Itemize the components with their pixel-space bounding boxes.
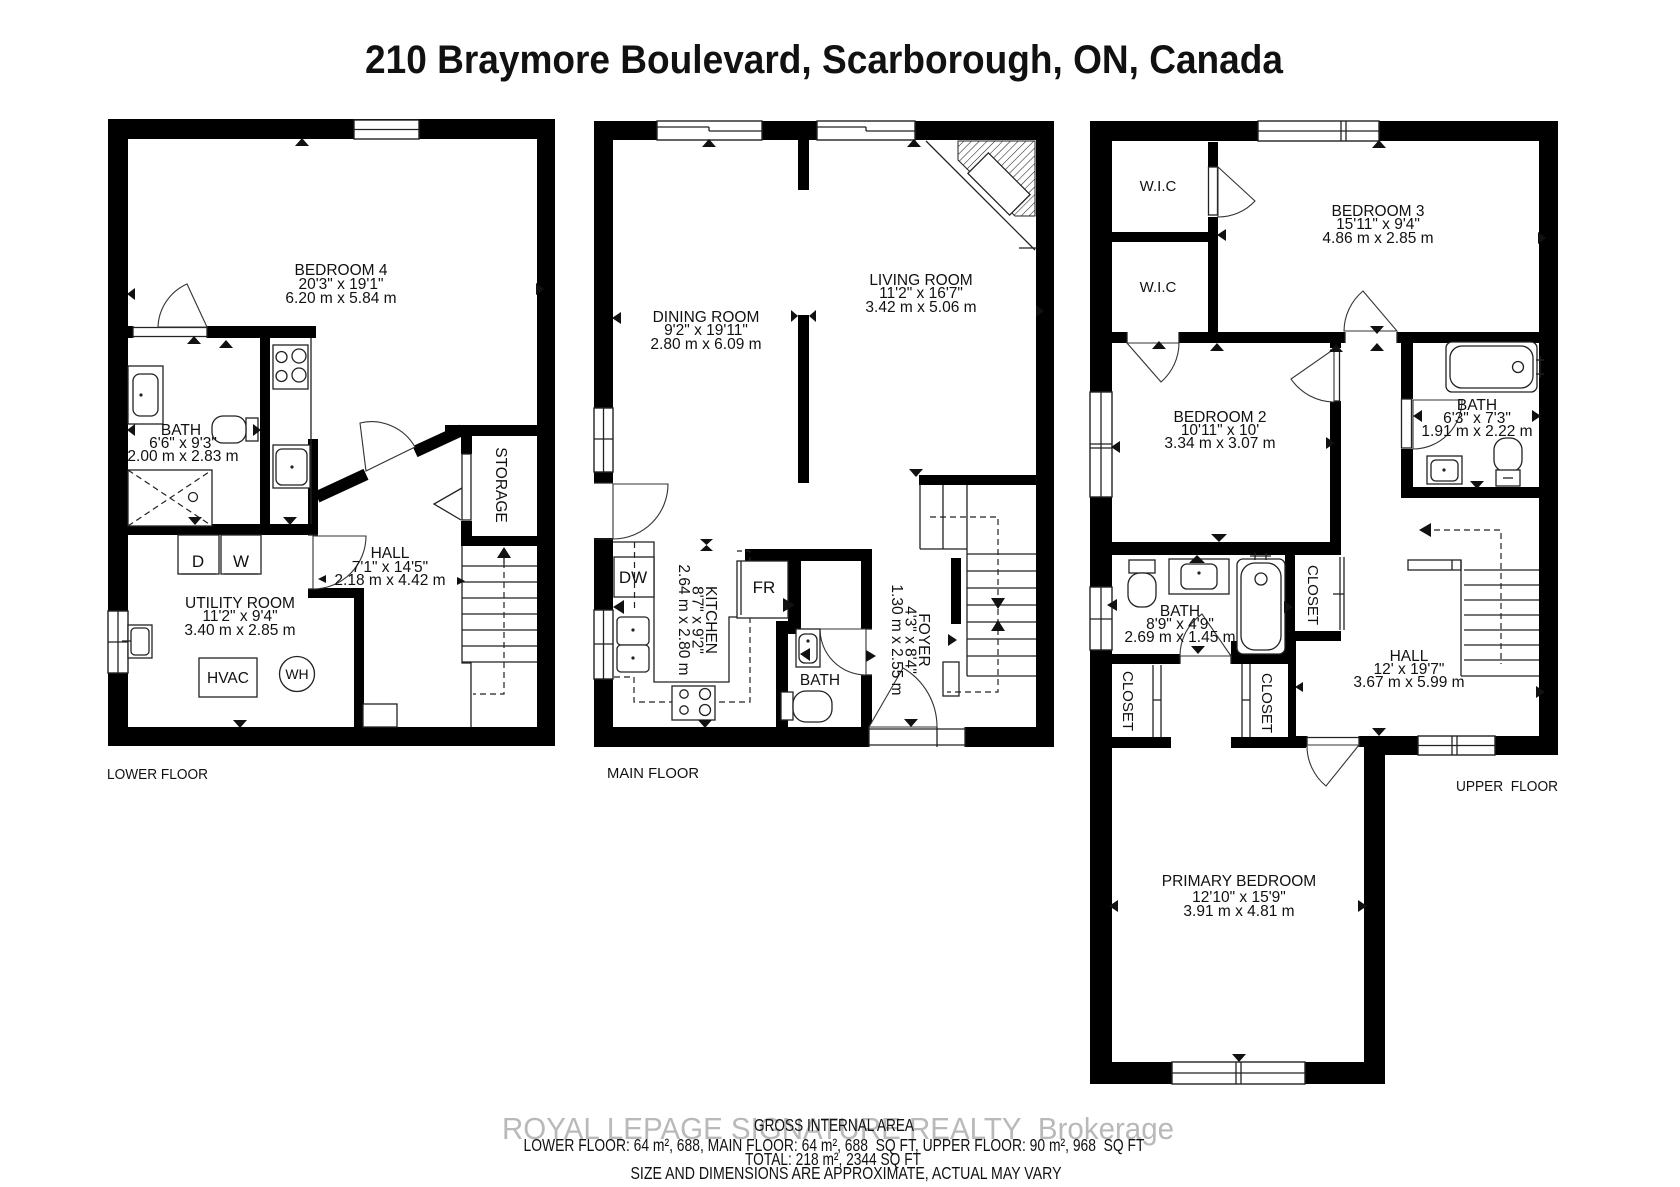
- svg-text:6.20 m x 5.84 m: 6.20 m x 5.84 m: [285, 290, 396, 307]
- svg-text:3.91 m x 4.81 m: 3.91 m x 4.81 m: [1183, 903, 1294, 920]
- svg-text:2.18 m x 4.42 m: 2.18 m x 4.42 m: [334, 572, 445, 589]
- svg-text:2.69 m x 1.45 m: 2.69 m x 1.45 m: [1124, 629, 1235, 646]
- svg-text:HVAC: HVAC: [207, 670, 249, 687]
- svg-text:CLOSET: CLOSET: [1258, 673, 1275, 733]
- svg-text:STORAGE: STORAGE: [492, 447, 509, 523]
- svg-text:GROSS INTERNAL AREA: GROSS INTERNAL AREA: [754, 1115, 914, 1135]
- svg-text:2.00 m x 2.83 m: 2.00 m x 2.83 m: [127, 448, 238, 465]
- svg-text:SIZE AND DIMENSIONS ARE APPROX: SIZE AND DIMENSIONS ARE APPROXIMATE, ACT…: [631, 1163, 1062, 1183]
- svg-text:D: D: [192, 552, 204, 571]
- svg-text:CLOSET: CLOSET: [1304, 565, 1321, 625]
- svg-text:W: W: [233, 552, 249, 571]
- svg-text:3.67 m x 5.99 m: 3.67 m x 5.99 m: [1353, 674, 1464, 691]
- svg-text:W.I.C: W.I.C: [1140, 178, 1177, 195]
- svg-text:PRIMARY BEDROOM: PRIMARY BEDROOM: [1162, 873, 1316, 890]
- svg-text:DW: DW: [619, 568, 647, 587]
- svg-text:3.42 m x 5.06 m: 3.42 m x 5.06 m: [865, 299, 976, 316]
- svg-text:FR: FR: [753, 578, 776, 597]
- svg-text:LOWER FLOOR: LOWER FLOOR: [107, 767, 208, 783]
- svg-text:3.34 m x 3.07 m: 3.34 m x 3.07 m: [1164, 435, 1275, 452]
- svg-text:2.64 m x 2.80 m: 2.64 m x 2.80 m: [675, 564, 692, 675]
- svg-text:1.30 m x 2.55 m: 1.30 m x 2.55 m: [888, 584, 905, 695]
- svg-text:W.I.C: W.I.C: [1140, 279, 1177, 296]
- svg-text:1.91 m x 2.22 m: 1.91 m x 2.22 m: [1421, 423, 1532, 440]
- svg-text:BATH: BATH: [800, 672, 840, 689]
- svg-text:WH: WH: [285, 666, 308, 682]
- svg-text:3.40 m x 2.85 m: 3.40 m x 2.85 m: [184, 622, 295, 639]
- svg-text:2.80 m x 6.09 m: 2.80 m x 6.09 m: [650, 336, 761, 353]
- svg-text:UPPER FLOOR: UPPER FLOOR: [1456, 779, 1558, 795]
- svg-text:210 Braymore Boulevard, Scarbo: 210 Braymore Boulevard, Scarborough, ON,…: [365, 38, 1284, 82]
- svg-text:4.86 m x 2.85 m: 4.86 m x 2.85 m: [1322, 230, 1433, 247]
- svg-text:MAIN FLOOR: MAIN FLOOR: [607, 766, 699, 782]
- svg-text:CLOSET: CLOSET: [1119, 671, 1136, 731]
